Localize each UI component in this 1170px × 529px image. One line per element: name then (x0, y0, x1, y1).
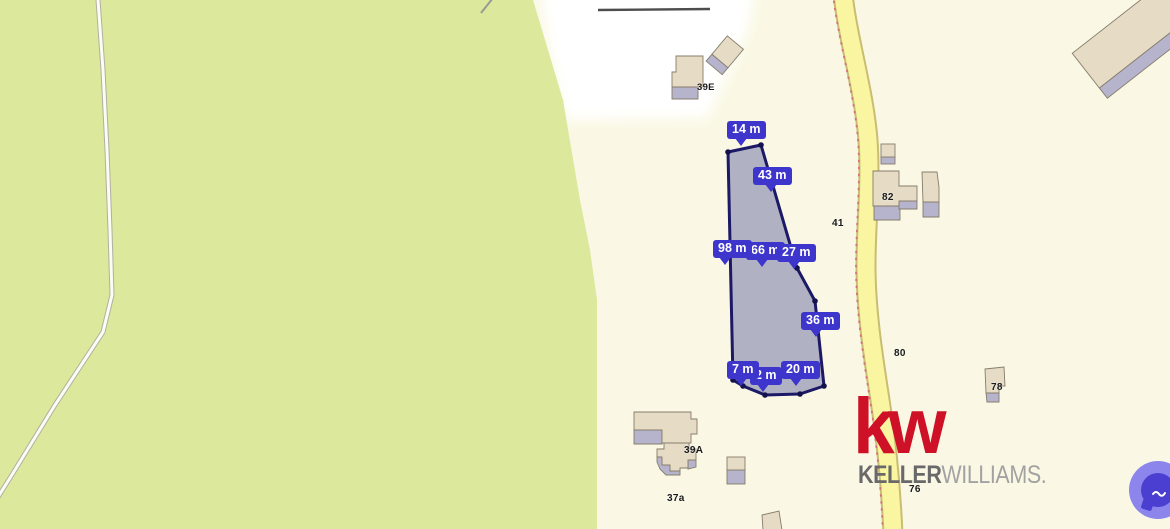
house-label-78: 78 (991, 383, 1003, 393)
forest-area (0, 0, 597, 529)
house-label-37a: 37a (667, 494, 685, 504)
measurement-label-43m: 43 m (753, 167, 792, 185)
label-pointer (765, 184, 777, 198)
house-label-39a: 39A (684, 446, 703, 456)
kw-logo-mark: kw (853, 394, 940, 458)
map-base-layer (0, 0, 1170, 529)
road-label-41: 41 (832, 219, 844, 229)
measurement-label-14m: 14 m (727, 121, 766, 139)
label-pointer (790, 378, 802, 392)
house-label-39e: 39E (697, 83, 715, 93)
measurement-label-98m: 98 m (713, 240, 752, 258)
building-shed (727, 457, 745, 484)
label-pointer (810, 329, 822, 343)
kw-logo-keller: KELLER (858, 461, 941, 489)
label-pointer (757, 384, 769, 398)
label-pointer (756, 259, 768, 273)
label-pointer (719, 257, 731, 271)
map-canvas[interactable]: 39E 82 41 80 78 39A 37a 76 66 m 98 m 27 … (0, 0, 1170, 529)
measurement-label-7m: 7 m (727, 361, 759, 379)
measurement-label-20m: 20 m (781, 361, 820, 379)
chat-squiggle-icon (1151, 488, 1167, 498)
kw-logo-williams: WILLIAMS (941, 461, 1040, 489)
wall-line (598, 9, 710, 10)
measurement-label-36m: 36 m (801, 312, 840, 330)
kw-logo-name: KELLERWILLIAMS. (858, 463, 1046, 488)
label-pointer (735, 378, 747, 392)
measurement-label-27m: 27 m (777, 244, 816, 262)
road-label-80: 80 (894, 349, 906, 359)
kw-logo-suffix: . (1041, 461, 1047, 489)
house-label-82: 82 (882, 193, 894, 203)
label-pointer (735, 138, 747, 152)
label-pointer (788, 261, 800, 275)
